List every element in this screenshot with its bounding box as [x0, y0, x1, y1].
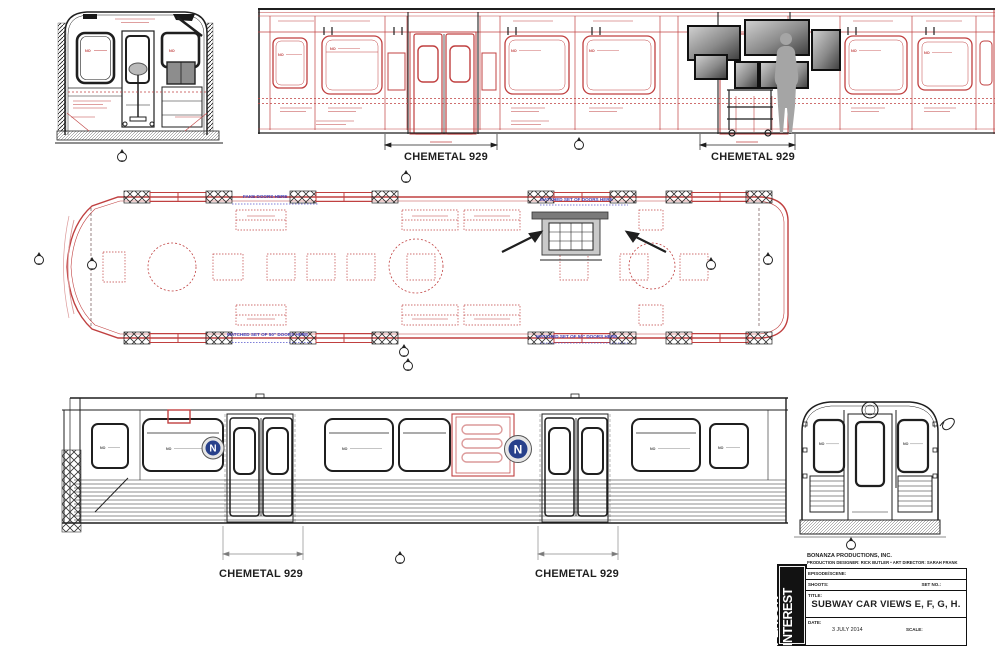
floor-squares [213, 254, 708, 280]
end-vent-fixture [173, 14, 195, 21]
svg-text:NO: NO [589, 49, 595, 53]
roof-fan [862, 402, 878, 418]
chemetal-label-top-right: CHEMETAL 929 [706, 151, 800, 163]
interior-windows: NO NO NO NO NO NO [273, 36, 992, 94]
svg-text:NO: NO [851, 49, 857, 53]
view-marker [84, 255, 100, 271]
end-gate [62, 450, 81, 532]
subway-line-badge: N [505, 436, 532, 463]
exterior-end-elevation-view: NO NO [790, 392, 990, 552]
leader-squiggle [940, 418, 954, 429]
note-fake-doors: FAKE DOORS HERE [243, 194, 287, 199]
drawing-sheet: NO NO [0, 0, 999, 646]
note-matched-doors: MATCHED SET OF DOORS HERE [540, 197, 613, 202]
svg-text:NO: NO [924, 51, 930, 55]
logo-text: PERSONOF INTEREST [777, 564, 797, 646]
date-value: 3 JULY 2014 [832, 627, 863, 633]
exterior-door-right [540, 414, 610, 522]
svg-text:NO: NO [650, 447, 656, 451]
shoot-row: SHOOTS: SET NO.: [806, 580, 966, 591]
plan-view [62, 190, 790, 345]
view-marker [31, 250, 47, 266]
equipment-cart [162, 87, 202, 127]
note-matched-50-left: MATCHED SET OF 50" DOORS HERE [227, 332, 308, 337]
louver-panels [810, 476, 932, 512]
drawing-title: SUBWAY CAR VIEWS E, F, G, H. [806, 599, 966, 610]
scale-label: SCALE: [906, 627, 923, 632]
svg-text:NO: NO [342, 447, 348, 451]
subway-line-badge: N [202, 437, 224, 459]
view-marker [392, 549, 408, 565]
view-marker [843, 535, 859, 551]
title-block-table: EPISODE/SCENE: SHOOTS: SET NO.: TITLE: S… [805, 568, 967, 646]
shoot-label: SHOOTS: [808, 582, 829, 589]
view-marker [400, 356, 416, 372]
title-label: TITLE: [808, 593, 822, 598]
chemetal-label-top-left: CHEMETAL 929 [396, 151, 496, 163]
exterior-windows: NO NO NO NO NO [92, 419, 748, 471]
view-marker [114, 147, 130, 163]
end-sill [800, 520, 940, 534]
window-stencil: NO [169, 49, 175, 53]
end-door [848, 414, 892, 520]
credits-line: PRODUCTION DESIGNER: RICK BUTLER • ART D… [807, 560, 958, 565]
wall-mullions [270, 16, 976, 130]
svg-text:NO: NO [166, 447, 172, 451]
end-light-fixture [83, 14, 97, 19]
svg-text:NO: NO [718, 446, 724, 450]
title-row: TITLE: SUBWAY CAR VIEWS E, F, G, H. [806, 591, 966, 618]
operator-seat [129, 63, 147, 75]
end-windows: NO NO [814, 420, 928, 472]
episode-label: EPISODE/SCENE: [808, 571, 846, 576]
set-no-label: SET NO.: [922, 582, 942, 589]
window-stencil: NO [85, 49, 91, 53]
red-sign-location [168, 410, 190, 423]
svg-text:NO: NO [330, 47, 336, 51]
exterior-side-elevation-view: NO NO NO NO NO [62, 392, 790, 564]
svg-text:NO: NO [100, 446, 106, 450]
view-marker [760, 250, 776, 266]
corrugated-band [74, 480, 786, 520]
pole-circle [629, 243, 675, 289]
svg-text:NO: NO [511, 49, 517, 53]
pole-circle [148, 243, 196, 291]
company-name: BONANZA PRODUCTIONS, INC. [807, 553, 892, 559]
episode-row: EPISODE/SCENE: [806, 569, 966, 580]
date-label: DATE: [808, 620, 821, 625]
view-marker [398, 168, 414, 184]
person-of-interest-logo: PERSONOF INTEREST [777, 564, 807, 646]
monitor-bank [688, 20, 840, 88]
exterior-door-left [225, 414, 295, 522]
svg-text:NO: NO [278, 53, 284, 57]
view-marker [703, 255, 719, 271]
svg-text:NO: NO [819, 442, 825, 446]
dimension-lines [223, 526, 618, 560]
interior-side-elevation-view: NO NO NO NO NO NO [258, 8, 995, 168]
end-window-left [77, 33, 114, 83]
date-row: DATE: 3 JULY 2014 SCALE: [806, 618, 966, 645]
svg-text:NO: NO [903, 442, 909, 446]
svg-text:N: N [514, 443, 523, 457]
note-matched-50-center: MATCHED SET OF 50" DOORS HERE [536, 334, 617, 339]
monitor-station-plan [532, 212, 608, 260]
chemetal-label-bottom-left: CHEMETAL 929 [214, 568, 308, 580]
chemetal-label-bottom-right: CHEMETAL 929 [530, 568, 624, 580]
interior-door-left [410, 32, 476, 134]
svg-text:N: N [209, 444, 216, 455]
view-marker [571, 135, 587, 151]
end-interior-elevation-view: NO NO [55, 5, 225, 190]
